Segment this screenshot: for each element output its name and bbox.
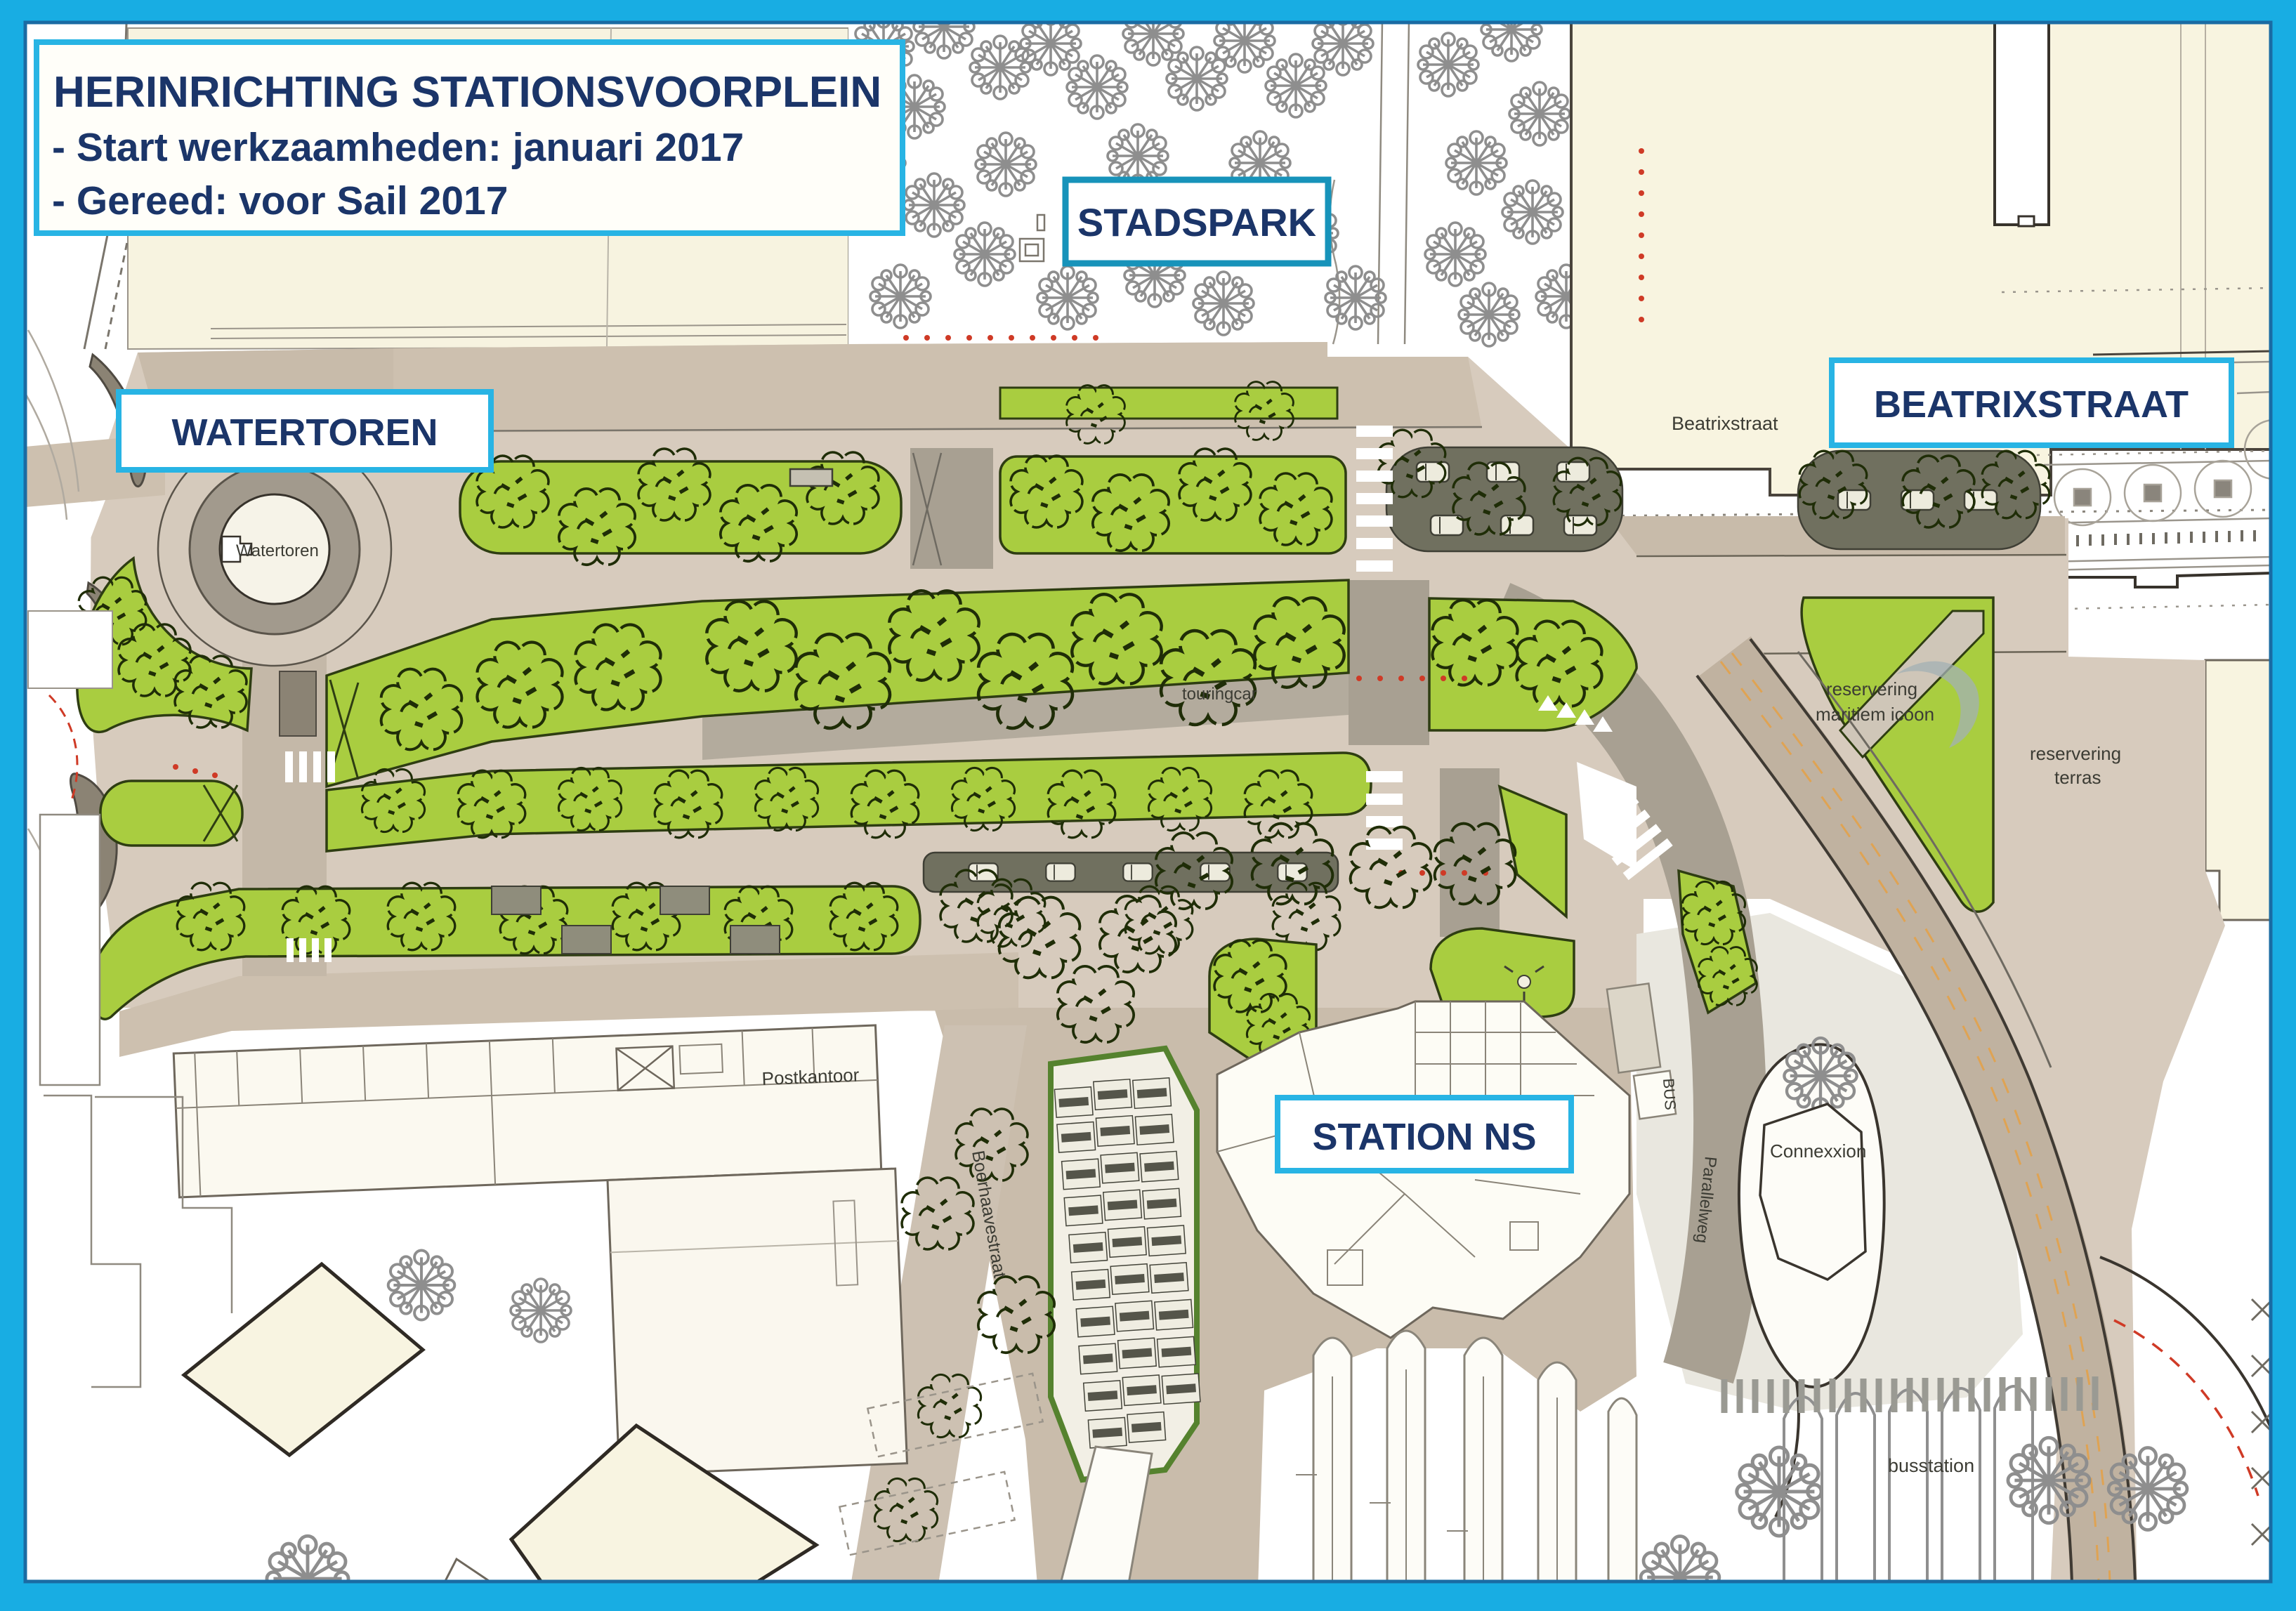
svg-text:WATERTOREN: WATERTOREN: [171, 412, 438, 454]
svg-text:STATION NS: STATION NS: [1313, 1116, 1537, 1158]
svg-text:- Gereed: voor Sail 2017: - Gereed: voor Sail 2017: [52, 178, 508, 223]
svg-text:touringcar: touringcar: [1182, 685, 1257, 704]
svg-text:HERINRICHTING STATIONSVOORPLEI: HERINRICHTING STATIONSVOORPLEIN: [53, 68, 881, 117]
svg-text:Beatrixstraat: Beatrixstraat: [1672, 413, 1778, 434]
svg-text:Connexxion: Connexxion: [1770, 1140, 1866, 1162]
svg-text:terras: terras: [2054, 767, 2101, 788]
svg-text:BEATRIXSTRAAT: BEATRIXSTRAAT: [1874, 383, 2189, 426]
svg-text:BUS: BUS: [1660, 1078, 1679, 1111]
svg-text:reservering: reservering: [1826, 678, 1917, 699]
svg-text:Watertoren: Watertoren: [236, 541, 319, 560]
svg-text:- Start werkzaamheden: januari: - Start werkzaamheden: januari 2017: [52, 125, 744, 170]
svg-text:STADSPARK: STADSPARK: [1077, 200, 1316, 244]
svg-text:Postkantoor: Postkantoor: [761, 1064, 860, 1089]
svg-text:busstation: busstation: [1888, 1455, 1974, 1476]
svg-text:reservering: reservering: [2030, 743, 2121, 764]
svg-text:maritiem icoon: maritiem icoon: [1816, 704, 1934, 725]
